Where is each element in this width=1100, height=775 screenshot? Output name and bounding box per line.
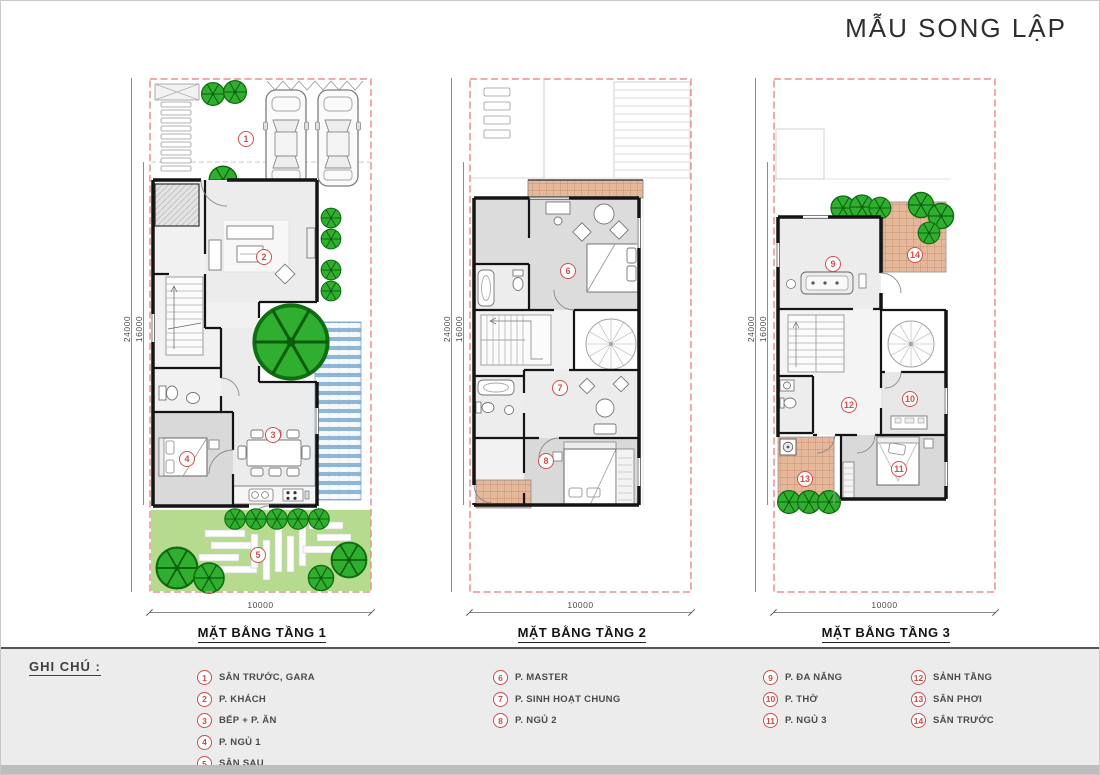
floor-plan-1-drawing [149, 78, 375, 598]
legend-item-label: P. NGỦ 2 [515, 715, 557, 726]
stairs [481, 315, 551, 365]
footer-bar [1, 765, 1099, 774]
room-marker-2: 2 [256, 249, 272, 265]
tree-icon [321, 260, 341, 280]
room-marker-1: 1 [238, 131, 254, 147]
legend-item-number: 4 [197, 735, 212, 750]
legend-item-label: P. KHÁCH [219, 694, 266, 705]
legend-item: 2P. KHÁCH [197, 691, 315, 708]
legend-column-2: 6P. MASTER7P. SINH HOẠT CHUNG8P. NGỦ 2 [493, 669, 621, 734]
tree-icon [778, 491, 801, 514]
tree-icon [246, 509, 266, 529]
house-floor-2 [474, 197, 643, 508]
tree-icon [818, 491, 841, 514]
room-marker-10: 10 [902, 391, 918, 407]
legend-item-number: 10 [763, 692, 778, 707]
tree-icon [321, 208, 341, 228]
kitchen-counter [233, 486, 317, 504]
legend-item: 10P. THỜ [763, 691, 842, 708]
legend-item-number: 11 [763, 713, 778, 728]
legend-column-1: 1SÂN TRƯỚC, GARA2P. KHÁCH3BẾP + P. ĂN4P.… [197, 669, 315, 775]
legend-item-label: P. THỜ [785, 694, 818, 705]
plan-3-title: MẶT BẰNG TẦNG 3 [773, 624, 999, 642]
legend-item: 6P. MASTER [493, 669, 621, 686]
floor-plan-2: 678 24000 16000 10000 MẶT BẰNG TẦNG 2 [469, 78, 695, 648]
legend-item: 9P. ĐA NĂNG [763, 669, 842, 686]
dimension-label-lot-depth: 24000 [442, 309, 452, 349]
dimension-line-width: 10000 [149, 612, 372, 613]
dimension-label-lot-depth: 24000 [746, 309, 756, 349]
legend-item-label: SÂN TRƯỚC [933, 715, 994, 726]
legend-item: 7P. SINH HOẠT CHUNG [493, 691, 621, 708]
legend-item: 1SÂN TRƯỚC, GARA [197, 669, 315, 686]
tree-icon [194, 563, 224, 593]
tree-icon [321, 229, 341, 249]
floor-plan-3-drawing [773, 78, 999, 598]
bedroom-2-furniture [553, 442, 634, 505]
legend-item: 13SÂN PHƠI [911, 691, 994, 708]
legend-column-3: 9P. ĐA NĂNG10P. THỜ11P. NGỦ 3 [763, 669, 842, 734]
room-marker-5: 5 [250, 547, 266, 563]
courtyard-tree-outline-icon [586, 319, 636, 369]
legend-item-label: P. MASTER [515, 672, 568, 683]
car-icon [264, 90, 309, 186]
tree-icon [321, 281, 341, 301]
courtyard-tree-outline-icon [888, 321, 934, 367]
legend-item: 4P. NGỦ 1 [197, 734, 315, 751]
floor-plan-3: 91011121314 24000 16000 10000 MẶT BẰNG T… [773, 78, 999, 648]
stairs [166, 277, 203, 355]
legend-item-number: 14 [911, 713, 926, 728]
dimension-label-width: 10000 [149, 600, 372, 610]
legend-item-number: 8 [493, 713, 508, 728]
room-marker-14: 14 [907, 247, 923, 263]
legend-item-label: P. NGỦ 1 [219, 737, 261, 748]
washing-machine-icon [780, 439, 796, 455]
room-marker-4: 4 [179, 451, 195, 467]
dimension-label-width: 10000 [773, 600, 996, 610]
room-marker-7: 7 [552, 380, 568, 396]
legend-item: 12SẢNH TẦNG [911, 669, 994, 686]
plan-1-title: MẶT BẰNG TẦNG 1 [149, 624, 375, 642]
dimension-label-house-depth: 16000 [134, 309, 144, 349]
tree-icon [202, 83, 225, 106]
legend-item-label: SÂN TRƯỚC, GARA [219, 672, 315, 683]
tree-icon [157, 548, 198, 589]
room-marker-8: 8 [538, 453, 554, 469]
legend-item: 3BẾP + P. ĂN [197, 712, 315, 729]
page: MẪU SONG LẬP [0, 0, 1100, 775]
legend-item-number: 13 [911, 692, 926, 707]
tree-icon [288, 509, 308, 529]
dimension-label-house-depth: 16000 [454, 309, 464, 349]
tree-icon [798, 491, 821, 514]
legend-item: 14SÂN TRƯỚC [911, 712, 994, 729]
stepping-stones [161, 102, 191, 171]
dimension-label-house-depth: 16000 [758, 309, 768, 349]
legend-item-number: 1 [197, 670, 212, 685]
room-marker-9: 9 [825, 256, 841, 272]
legend-item: 11P. NGỦ 3 [763, 712, 842, 729]
altar-furniture [891, 416, 927, 429]
legend-item-number: 7 [493, 692, 508, 707]
room-marker-3: 3 [265, 427, 281, 443]
legend-item-label: P. SINH HOẠT CHUNG [515, 694, 621, 705]
dimension-line-width: 10000 [469, 612, 692, 613]
dimension-line-width: 10000 [773, 612, 996, 613]
house-floor-1 [151, 180, 361, 526]
room-marker-11: 11 [891, 461, 907, 477]
legend-item: 8P. NGỦ 2 [493, 712, 621, 729]
legend-column-4: 12SẢNH TẦNG13SÂN PHƠI14SÂN TRƯỚC [911, 669, 994, 734]
courtyard-tree-icon [254, 305, 327, 378]
floor-plan-1: 12345 24000 16000 10000 MẶT BẰNG TẦNG 1 [149, 78, 375, 648]
legend-item-number: 3 [197, 713, 212, 728]
legend-item-number: 12 [911, 670, 926, 685]
legend-panel: GHI CHÚ : 1SÂN TRƯỚC, GARA2P. KHÁCH3BẾP … [1, 647, 1099, 774]
legend-item-number: 6 [493, 670, 508, 685]
stairs [788, 315, 844, 372]
tree-icon [267, 509, 287, 529]
floor-plan-2-drawing [469, 78, 695, 598]
tree-icon [332, 543, 367, 578]
dimension-label-width: 10000 [469, 600, 692, 610]
page-title: MẪU SONG LẬP [845, 13, 1067, 44]
legend-item-number: 9 [763, 670, 778, 685]
legend-item-label: P. NGỦ 3 [785, 715, 827, 726]
legend-item-number: 2 [197, 692, 212, 707]
legend-item-label: SẢNH TẦNG [933, 672, 992, 683]
tree-icon [309, 509, 329, 529]
tree-icon [224, 81, 247, 104]
tree-icon [225, 509, 245, 529]
dimension-label-lot-depth: 24000 [122, 309, 132, 349]
legend-item-label: P. ĐA NĂNG [785, 672, 842, 683]
balcony [528, 180, 643, 198]
car-icon [316, 90, 361, 186]
legend-item-label: SÂN PHƠI [933, 694, 982, 705]
room-marker-6: 6 [560, 263, 576, 279]
legend-item-label: BẾP + P. ĂN [219, 715, 277, 726]
tree-icon [918, 222, 940, 244]
tree-icon [308, 565, 333, 590]
room-marker-12: 12 [841, 397, 857, 413]
room-marker-13: 13 [797, 471, 813, 487]
legend-heading: GHI CHÚ : [29, 659, 101, 676]
plan-2-title: MẶT BẰNG TẦNG 2 [469, 624, 695, 642]
